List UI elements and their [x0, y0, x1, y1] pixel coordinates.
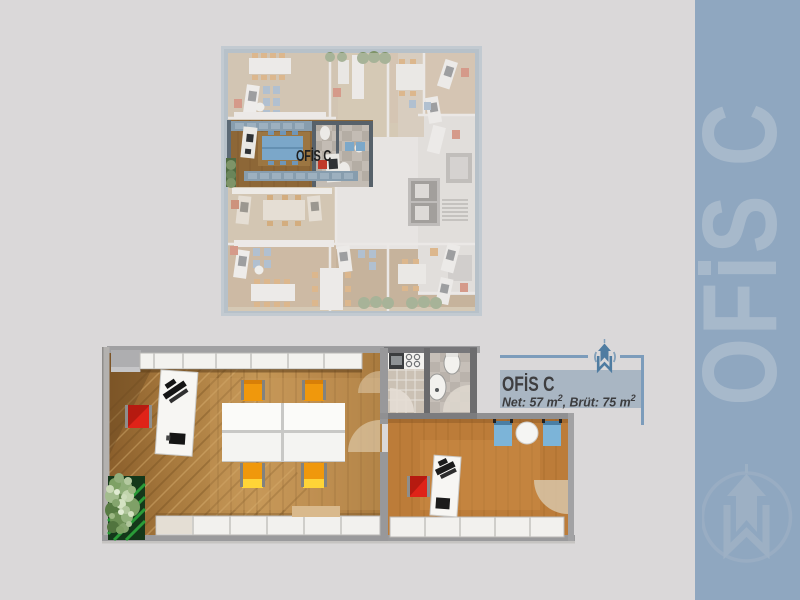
svg-text:OFİS C: OFİS C — [296, 147, 331, 165]
